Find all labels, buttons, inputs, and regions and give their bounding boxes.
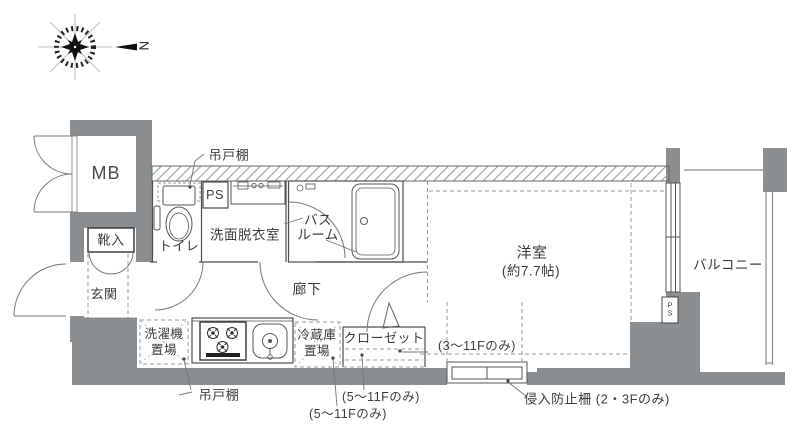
label-hanging-cupboard-top: 吊戸棚 <box>209 149 250 162</box>
floor-plan-drawing <box>0 0 800 430</box>
floor-plan: N MB 靴入 玄関 吊戸棚 PS トイレ 洗面脱衣室 バス ルーム 廊下 洋室… <box>0 0 800 430</box>
label-hanging-cupboard-bottom: 吊戸棚 <box>199 389 240 402</box>
compass-icon <box>38 14 137 80</box>
toilet-fixture <box>154 183 200 241</box>
compass-north-label: N <box>138 41 151 51</box>
room-label-western-room: 洋室 <box>516 246 547 261</box>
room-label-bath-line1: バス <box>304 213 332 227</box>
room-label-corridor: 廊下 <box>293 282 322 296</box>
label-washer-line1: 洗濯機 <box>144 328 183 341</box>
label-floors-5-11-b: (5〜11Fのみ) <box>309 408 387 421</box>
label-pipe-space-right-s: S <box>668 310 673 317</box>
label-washer-line2: 置場 <box>151 344 177 357</box>
north-needle <box>115 44 137 51</box>
room-label-entrance: 玄関 <box>90 288 117 301</box>
room-label-toilet: トイレ <box>159 240 200 253</box>
room-label-pipe-space-top: PS <box>206 189 224 202</box>
room-label-mb: MB <box>92 164 121 182</box>
room-label-bath-line2: ルーム <box>297 228 339 242</box>
label-intrusion-fence: 侵入防止柵 (2・3Fのみ) <box>524 393 670 406</box>
label-fridge-line1: 冷蔵庫 <box>297 329 336 342</box>
hatched-top-wall <box>152 166 669 181</box>
vanity-fixture <box>231 181 285 204</box>
label-pipe-space-right-p: P <box>668 302 673 309</box>
sink-fixture <box>253 324 287 359</box>
stove-fixture <box>200 322 246 360</box>
room-label-washroom: 洗面脱衣室 <box>210 228 280 242</box>
label-floors-5-11-a: (5〜11Fのみ) <box>342 391 420 404</box>
room-label-western-room-size: (約7.7帖) <box>502 264 560 278</box>
room-label-closet: クローゼット <box>343 332 424 345</box>
room-label-shoe-cabinet: 靴入 <box>97 234 124 247</box>
label-floors-3-11: (3〜11Fのみ) <box>438 340 516 353</box>
room-label-balcony: バルコニー <box>693 258 763 272</box>
label-fridge-line2: 置場 <box>304 345 330 358</box>
